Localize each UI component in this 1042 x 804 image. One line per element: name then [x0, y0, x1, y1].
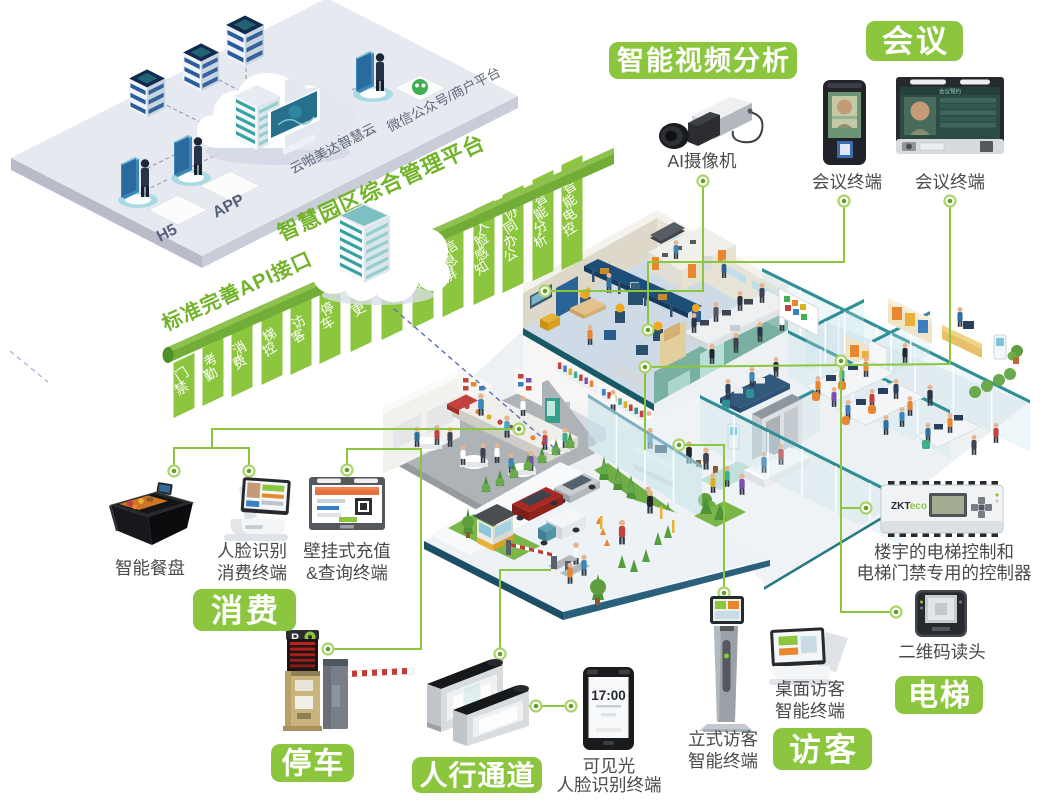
svg-text:桌面访客: 桌面访客	[775, 679, 845, 699]
svg-text:消费终端: 消费终端	[217, 563, 287, 583]
svg-text:壁挂式充值: 壁挂式充值	[303, 541, 391, 561]
svg-text:会议: 会议	[882, 24, 950, 59]
svg-text:智能终端: 智能终端	[688, 751, 758, 771]
svg-text:可见光: 可见光	[583, 756, 636, 776]
svg-text:访客: 访客	[789, 731, 859, 767]
svg-text:ZKTeco: ZKTeco	[891, 501, 927, 512]
svg-text:会议终端: 会议终端	[915, 172, 985, 192]
svg-text:智能视频分析: 智能视频分析	[617, 45, 791, 76]
svg-text:智能终端: 智能终端	[775, 701, 845, 721]
svg-text:楼宇的电梯控制和: 楼宇的电梯控制和	[874, 542, 1014, 562]
svg-text:停车: 停车	[282, 747, 346, 781]
svg-text:智能餐盘: 智能餐盘	[115, 558, 185, 578]
svg-text:消费: 消费	[211, 592, 281, 628]
svg-text:电梯: 电梯	[908, 680, 972, 713]
svg-text:会议终端: 会议终端	[812, 172, 882, 192]
svg-text:人脸识别终端: 人脸识别终端	[557, 775, 662, 795]
svg-text:会议预约: 会议预约	[939, 88, 962, 96]
svg-text:电梯门禁专用的控制器: 电梯门禁专用的控制器	[857, 563, 1032, 583]
svg-text:二维码读头: 二维码读头	[898, 642, 986, 662]
svg-text:17:00: 17:00	[591, 688, 626, 703]
svg-text:人行通道: 人行通道	[419, 759, 535, 791]
svg-text:人脸识别: 人脸识别	[217, 541, 287, 561]
svg-text:&查询终端: &查询终端	[306, 563, 388, 583]
svg-text:AI摄像机: AI摄像机	[667, 151, 737, 171]
svg-text:立式访客: 立式访客	[688, 729, 758, 749]
